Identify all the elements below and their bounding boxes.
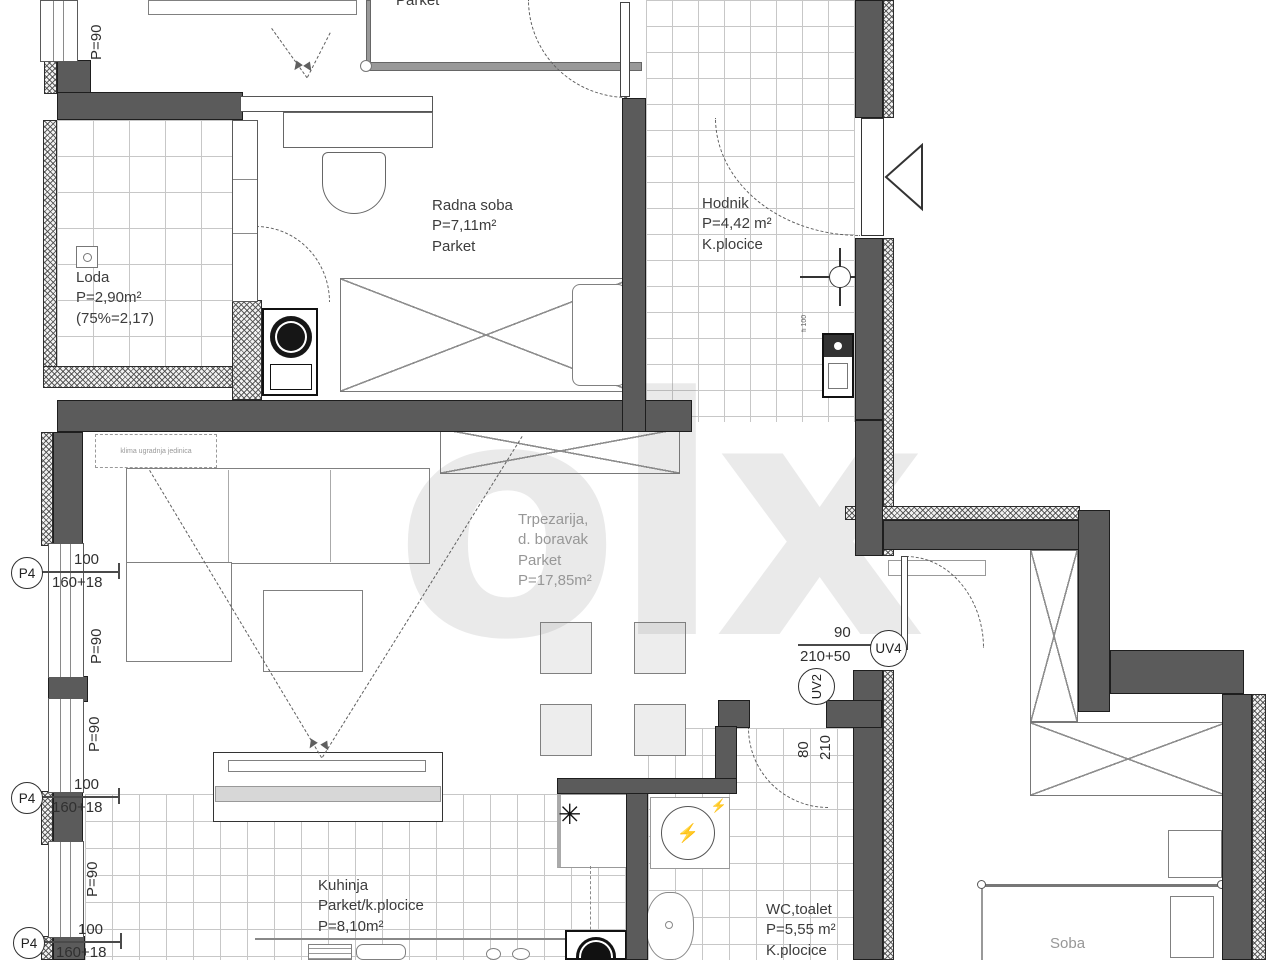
room-area: P=2,90m² (76, 288, 154, 308)
marker-p4: P4 (13, 927, 45, 959)
wall (57, 92, 243, 120)
dim-line (32, 941, 122, 943)
insulation-hatch (883, 0, 894, 118)
dim-90: 90 (834, 624, 851, 641)
room-area: P=8,10m² (318, 917, 424, 937)
sink-drainer (308, 944, 352, 960)
room-floor: Parket (518, 551, 592, 571)
dim-80: 80 (795, 716, 810, 758)
washing-machine (262, 308, 318, 396)
boiler-panel (828, 363, 848, 389)
bed-headboard (982, 884, 1222, 887)
wall (1078, 510, 1110, 712)
dim-p90: P=90 (88, 610, 106, 664)
wall (718, 700, 750, 728)
wall (1110, 650, 1244, 694)
room-label-kuhinja: Kuhinja Parket/k.plocice P=8,10m² (318, 876, 424, 937)
room-note: (75%=2,17) (76, 309, 154, 329)
washer-panel (270, 364, 312, 390)
room-floor: Parket (432, 237, 513, 257)
room-name: Radna soba (432, 196, 513, 216)
dim-210: 210 (817, 708, 832, 760)
dim-p90: P=90 (84, 843, 102, 897)
ac-unit-outline: klima ugradnja jedinica (95, 434, 217, 468)
room-name: WC,toalet (766, 900, 836, 920)
dim-210-50: 210+50 (800, 648, 850, 665)
room-floor: K.plocice (702, 235, 772, 255)
room-name2: d. boravak (518, 530, 592, 550)
entrance-door-leaf (861, 118, 884, 236)
loggia-tile-floor (57, 120, 233, 368)
washer-drum-outline: ⚡ (661, 806, 715, 860)
room-floor: K.plocice (766, 941, 836, 960)
floor-plan: olx (0, 0, 1280, 960)
insulation-hatch (44, 60, 57, 94)
room-label-soba: Soba (1050, 934, 1085, 954)
marker-uv2: UV2 (798, 668, 835, 705)
dim-100: 100 (74, 551, 99, 568)
room-label-wc: WC,toalet P=5,55 m² K.plocice (766, 900, 836, 960)
nightstand (1168, 830, 1222, 878)
wall (855, 420, 883, 556)
boiler-top (824, 335, 852, 357)
marker-p4: P4 (11, 557, 43, 589)
basin-drain (665, 921, 673, 929)
niche-hatch (232, 300, 262, 400)
drain-icon (76, 246, 98, 268)
boiler (822, 333, 854, 398)
dim-160-18: 160+18 (52, 574, 102, 591)
wall (557, 778, 737, 794)
nightstand (1170, 896, 1214, 958)
room-name: Trpezarija, (518, 510, 592, 530)
desk (283, 112, 433, 148)
door-swing-arc (256, 226, 330, 302)
washer-drum-icon (270, 316, 312, 358)
vent-symbol (829, 266, 851, 288)
dim-p90: P=90 (88, 6, 106, 60)
room-area: P=7,11m² (432, 216, 513, 236)
dim-tick (118, 563, 120, 579)
top-room-wall (366, 0, 371, 66)
dim-line (30, 796, 120, 798)
kitchen-shelf (228, 760, 426, 772)
room-label-hodnik: Hodnik P=4,42 m² K.plocice (702, 194, 772, 255)
dim-100: 100 (78, 921, 103, 938)
boiler-star-icon: ✳ (558, 798, 581, 831)
marker-uv2-label: UV2 (809, 674, 824, 699)
top-room-furniture (148, 0, 357, 15)
sofa-cushion-line (330, 470, 331, 562)
wall-node (360, 60, 372, 72)
door-swing-arc (528, 0, 628, 98)
dim-line (798, 644, 874, 646)
door-leaf (620, 2, 630, 97)
power-icon: ⚡ (677, 823, 699, 844)
stove (565, 930, 627, 960)
marker-uv4: UV4 (870, 630, 907, 667)
drain-circle (83, 253, 92, 262)
room-label-loda: Loda P=2,90m² (75%=2,17) (76, 268, 154, 329)
bed-post (977, 880, 986, 889)
room-label-trpezarija: Trpezarija, d. boravak Parket P=17,85m² (518, 510, 592, 591)
dim-160-18: 160+18 (52, 799, 102, 816)
entrance-arrow-icon (884, 143, 924, 213)
wall (855, 0, 883, 118)
room-area: P=5,55 m² (766, 920, 836, 940)
insulation-hatch (41, 432, 53, 546)
wall (1222, 694, 1252, 960)
wall (622, 98, 646, 432)
insulation-hatch (883, 670, 894, 960)
stove-burner (512, 948, 530, 960)
ac-unit-label: klima ugradnja jedinica (120, 448, 191, 455)
insulation-hatch (43, 366, 233, 388)
room-name: Kuhinja (318, 876, 424, 896)
room-area: P=4,42 m² (702, 214, 772, 234)
dim-tick (118, 788, 120, 804)
wall (855, 238, 883, 420)
room-floor: Parket/k.plocice (318, 896, 424, 916)
wardrobe (1030, 550, 1078, 722)
dim-160-18: 160+18 (56, 944, 106, 960)
wall (57, 60, 91, 94)
stove-burner (486, 948, 501, 960)
room-name: Hodnik (702, 194, 772, 214)
dim-100: 100 (74, 776, 99, 793)
sofa-cushion-line (228, 470, 229, 562)
wall-main-horizontal (57, 400, 692, 432)
insulation-hatch (1252, 694, 1266, 960)
marker-p4: P4 (11, 782, 43, 814)
wash-basin (646, 892, 694, 960)
kitchen-counter-band (215, 786, 441, 802)
room-area: P=17,85m² (518, 571, 592, 591)
dim-line (30, 571, 120, 573)
bed-side (981, 887, 983, 960)
loggia-door-window (232, 120, 258, 302)
office-chair (322, 152, 386, 214)
wardrobe (1030, 722, 1226, 796)
window (40, 0, 78, 62)
sliding-panel (240, 96, 433, 112)
coffee-table (263, 590, 363, 672)
insulation-hatch (43, 120, 57, 388)
room-label-top-parket: Parket (396, 0, 439, 11)
wc-washing-machine: ⚡ ⚡ (650, 797, 730, 869)
vent-pipe-label: fi 100 (801, 278, 813, 332)
boiler-dot (834, 342, 842, 350)
stove-plate-icon (576, 937, 616, 960)
sofa-chaise (126, 562, 232, 662)
wall (53, 432, 83, 546)
room-label-radna-soba: Radna soba P=7,11m² Parket (432, 196, 513, 257)
wall (883, 520, 1080, 550)
dim-p90: P=90 (86, 698, 104, 752)
room-name: Loda (76, 268, 154, 288)
dim-tick (120, 933, 122, 949)
dashed-door-line (271, 28, 307, 78)
sink-bowl (356, 944, 406, 960)
wall (715, 726, 737, 780)
power-icon: ⚡ (711, 798, 727, 814)
wall (826, 700, 882, 728)
wall (626, 793, 648, 960)
